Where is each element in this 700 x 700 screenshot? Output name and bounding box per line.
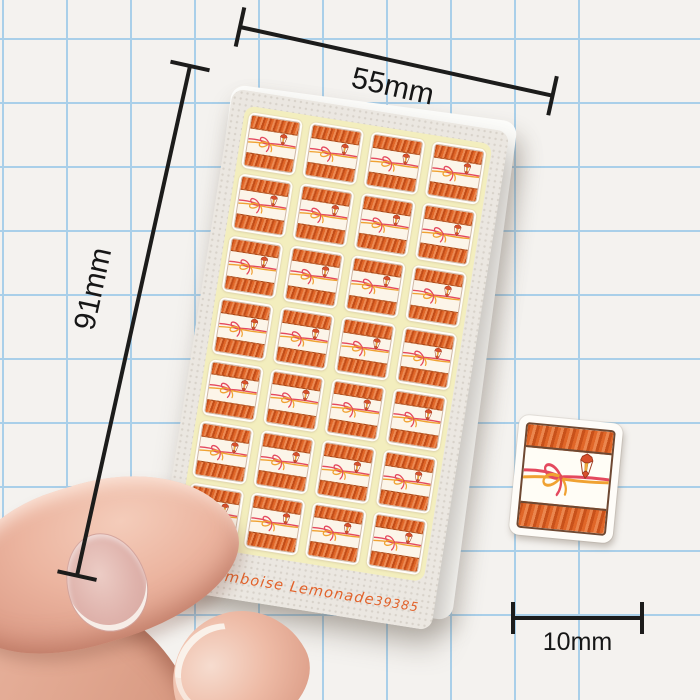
product-photo-scene: © Framboise Lemonade 39385 55mm 91mm 10m… [0,0,700,700]
envelope-design [368,513,426,573]
mini-sticker [292,183,354,247]
mini-sticker [425,141,487,205]
envelope-design [275,309,333,369]
envelope-design [366,134,424,194]
envelope-design [304,124,362,184]
mini-sticker [395,326,457,390]
envelope-design [233,176,291,236]
envelope-design [185,484,243,544]
envelope-design [265,371,323,431]
envelope-middle [521,447,612,508]
mini-sticker [366,511,428,575]
sticker-grid [176,105,492,582]
mini-sticker [283,245,345,309]
envelope-design [317,442,375,502]
envelope-design [243,114,301,174]
mini-sticker [324,378,386,442]
mini-sticker [244,492,306,556]
envelope-design [204,361,262,421]
dimension-line-sticker [513,616,642,620]
envelope-design [256,432,314,492]
envelope-design [336,319,394,379]
mini-sticker [354,193,416,257]
dimension-label-sticker: 10mm [503,628,652,657]
mini-sticker [305,501,367,565]
envelope-design [356,195,414,255]
mini-sticker [241,112,303,176]
envelope-design [224,238,282,298]
single-sticker-enlarged [508,414,623,543]
mini-sticker [376,449,438,513]
product-number: 39385 [374,593,425,615]
mini-sticker [334,316,396,380]
mini-sticker [315,440,377,504]
mini-sticker [415,203,477,267]
mini-sticker [363,131,425,195]
envelope-design [246,494,304,554]
mini-sticker [386,388,448,452]
envelope-design [295,186,353,246]
envelope-design [407,267,465,327]
mini-sticker [344,255,406,319]
mini-sticker [182,482,244,546]
mini-sticker [263,368,325,432]
mini-sticker [273,307,335,371]
mini-sticker [405,264,467,328]
mini-sticker [253,430,315,494]
envelope-design [346,257,404,317]
bow-noshi-icon [521,447,612,508]
envelope-design [378,452,436,512]
mini-sticker [302,122,364,186]
envelope-design [285,247,343,307]
envelope-design [194,423,252,483]
envelope-design [327,380,385,440]
mini-sticker [202,359,264,423]
mini-sticker [212,297,274,361]
mini-sticker [192,420,254,484]
envelope-design [388,390,446,450]
sticker-sheet-inner [176,105,492,582]
mini-sticker [231,174,293,238]
envelope-design [417,205,475,265]
envelope-design [214,299,272,359]
mini-sticker [221,235,283,299]
envelope-design [427,143,485,203]
envelope-design [307,504,365,564]
envelope-design [398,328,456,388]
envelope-design [516,422,616,536]
